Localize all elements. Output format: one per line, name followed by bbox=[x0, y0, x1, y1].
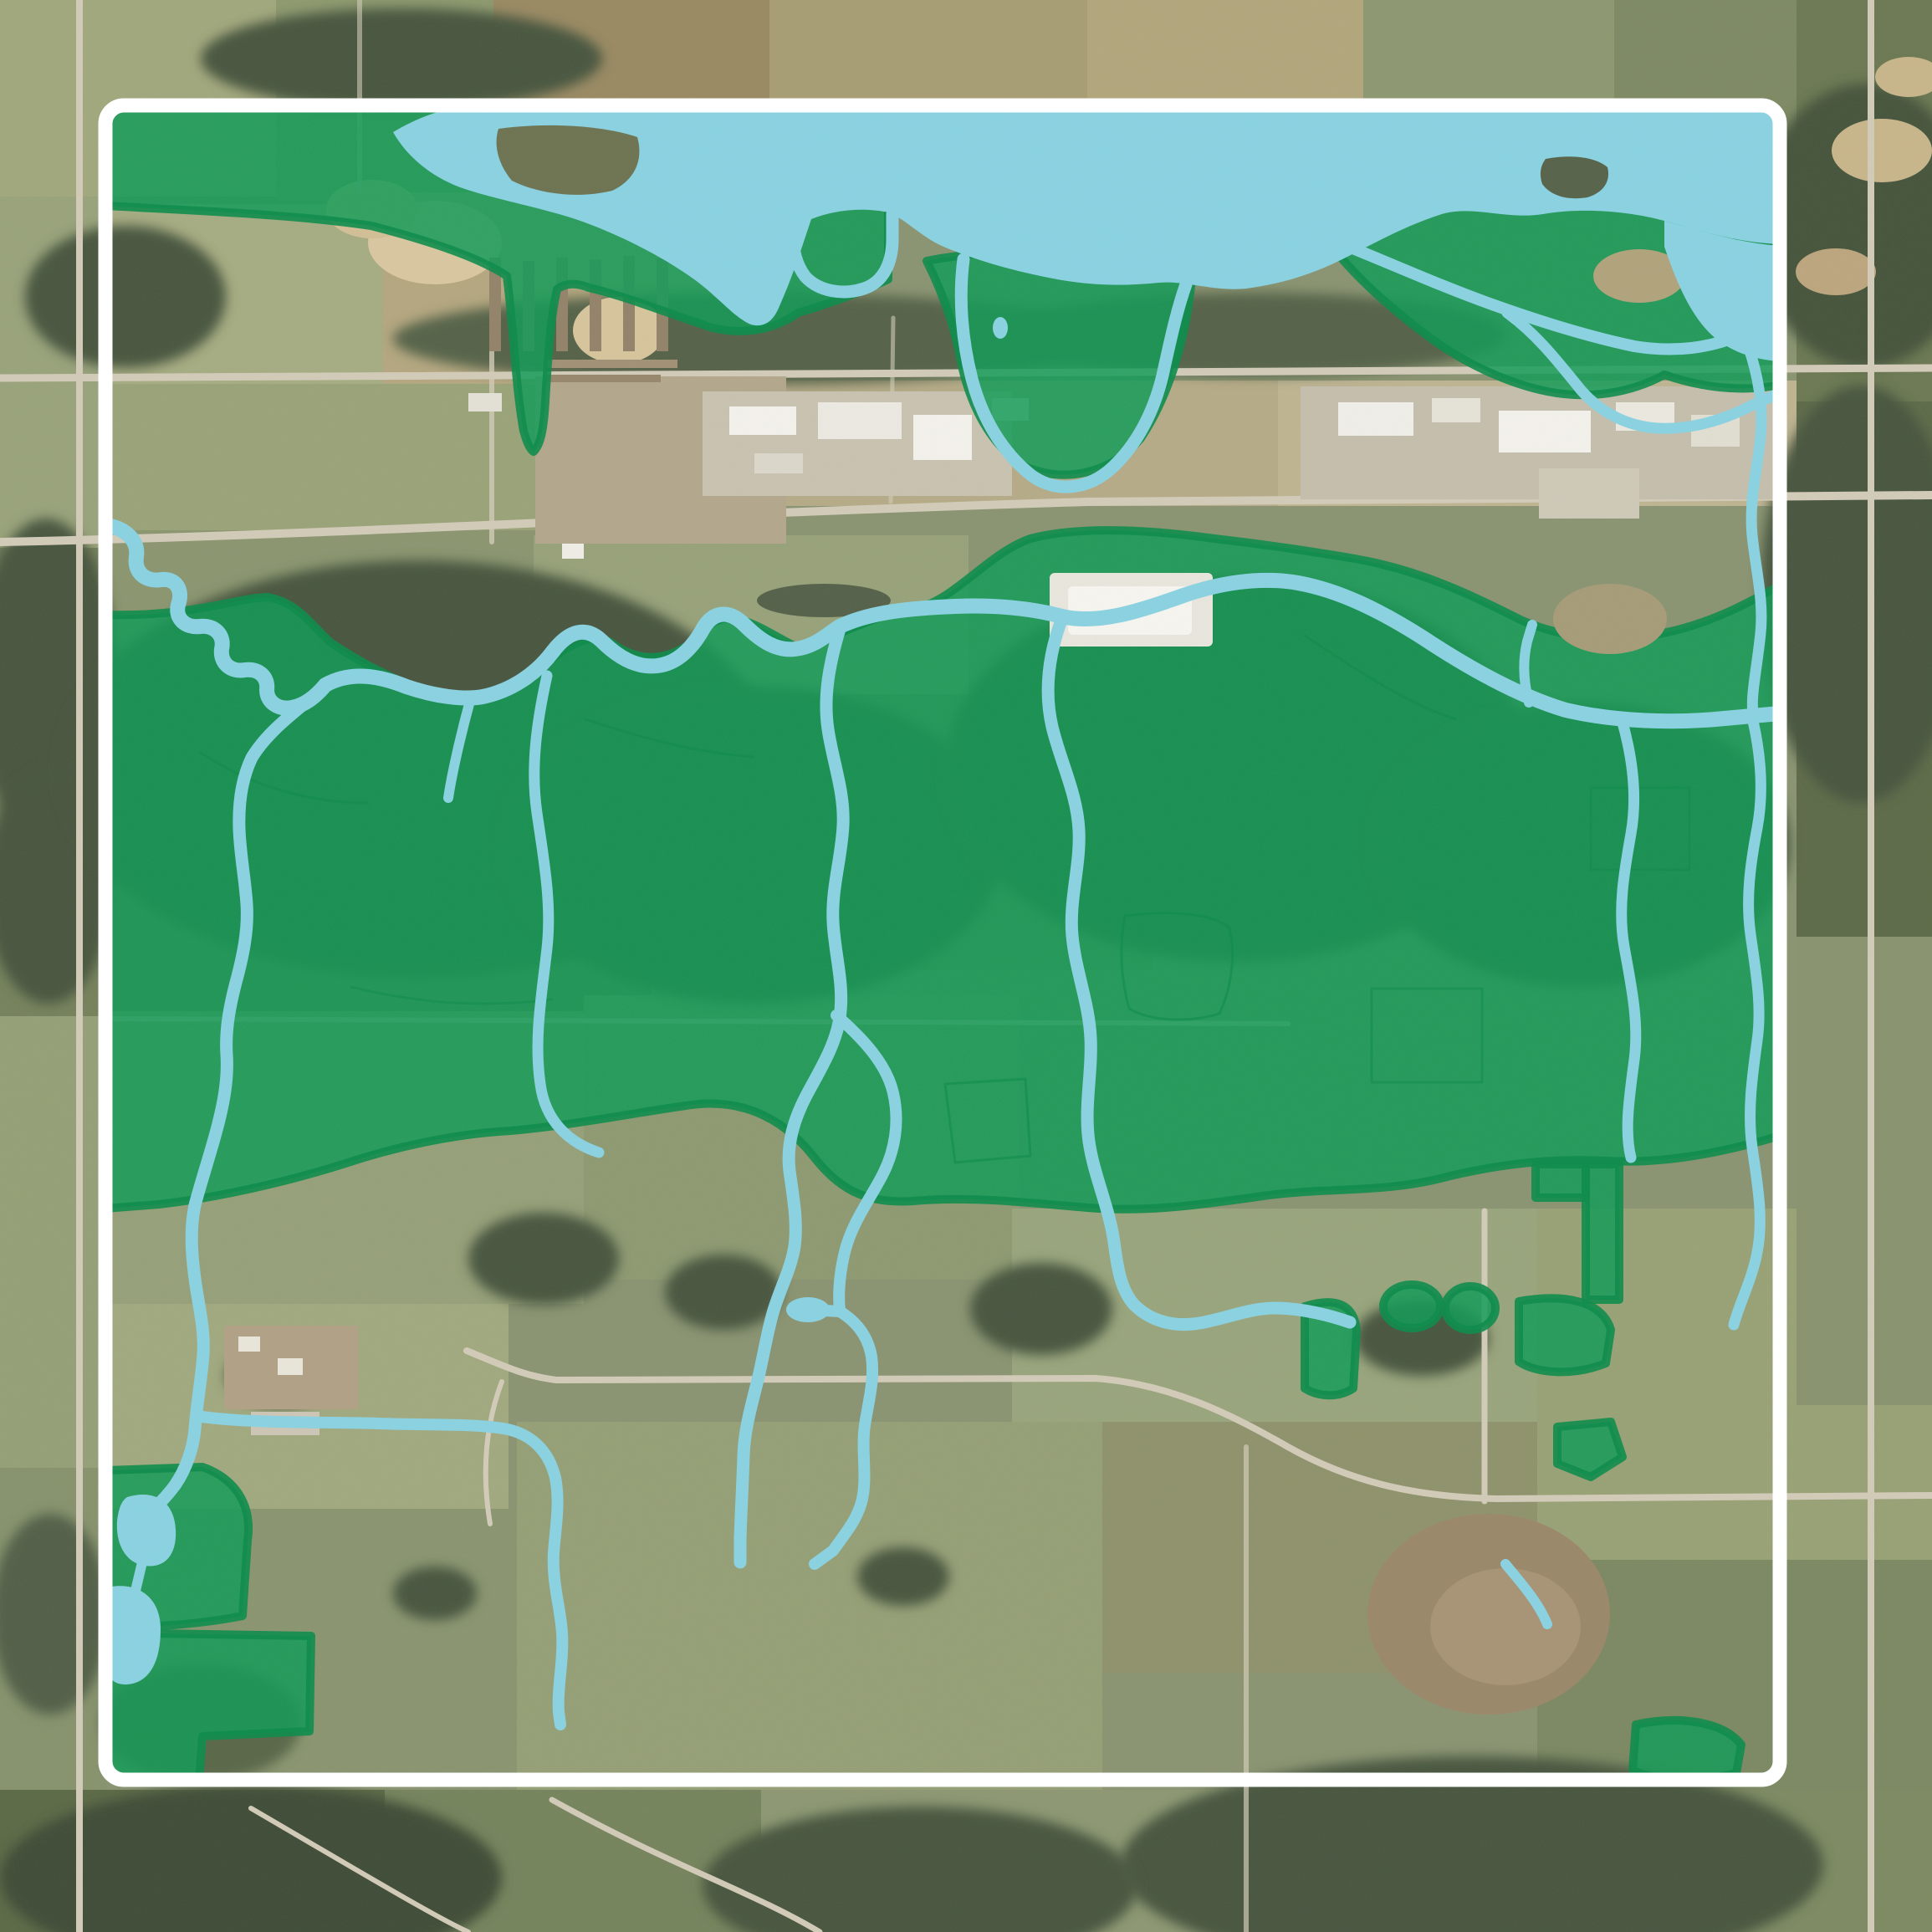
map-viewport[interactable] bbox=[0, 0, 1932, 1932]
satellite-map bbox=[0, 0, 1932, 1932]
